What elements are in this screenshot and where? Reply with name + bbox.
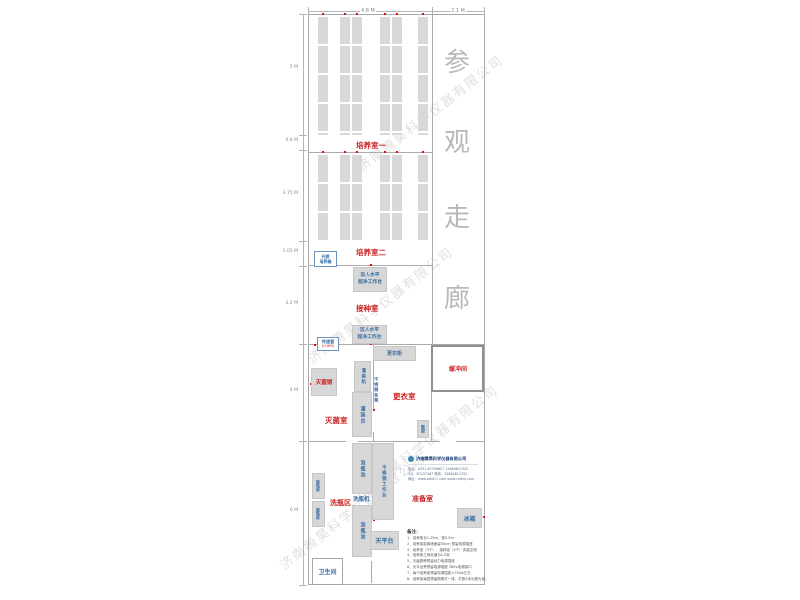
clean-bench-2: 双人水平 超净工作台 xyxy=(352,325,387,344)
dim-tick xyxy=(432,7,433,14)
fridge: 冰箱 xyxy=(457,508,482,528)
light-incubator: 光照 培养箱 xyxy=(314,251,337,267)
pass-window-size: (0.6M) xyxy=(322,344,334,349)
culture-rack xyxy=(340,17,350,135)
culture-rack xyxy=(352,17,362,135)
culture-rack xyxy=(418,155,428,242)
steel-worktable: 不锈钢工作台 xyxy=(372,443,394,520)
culture-rack xyxy=(380,155,390,242)
bottle-washer-label: 洗瓶机 xyxy=(353,495,370,503)
red-marker xyxy=(396,151,398,153)
corridor-char-2: 观 xyxy=(444,130,470,156)
door-gap xyxy=(346,441,358,442)
room-label-sterilization: 灭菌室 xyxy=(325,417,348,425)
company-logo-icon xyxy=(408,456,414,462)
red-marker xyxy=(483,516,485,518)
toilet: 卫生间 xyxy=(312,558,343,585)
wall-sterilization-east2 xyxy=(373,432,374,441)
shoe-rack: 鞋架 xyxy=(417,420,429,438)
company-block: 济南腾昊科学仪器有限公司 电话：0531-87799627 1586461235… xyxy=(408,456,478,482)
company-web: 网址：www.sdth17.com www.cnthkj.com xyxy=(408,477,478,482)
culture-rack xyxy=(380,17,390,135)
red-marker xyxy=(384,13,386,15)
toilet-label: 卫生间 xyxy=(318,567,336,576)
left-dimension-line xyxy=(303,14,304,585)
wall-below-buffer xyxy=(431,392,432,441)
dim-tick xyxy=(308,7,309,14)
soak-pool-label: 泡瓶池 xyxy=(360,460,365,478)
room-label-inoculation: 接种室 xyxy=(356,305,379,313)
dim-tick xyxy=(299,441,307,442)
dry-rack-1: 晾瓶架 xyxy=(312,473,325,499)
dim-tick xyxy=(299,585,307,586)
floor-plan: 济南腾昊科学仪器有限公司 济南腾昊科学仪器有限公司 济南腾昊科学仪器有限公司 济… xyxy=(0,0,800,600)
clean-bench-label2: 超净工作台 xyxy=(358,335,382,341)
soak-pool-label: 泡瓶池 xyxy=(360,522,365,540)
dry-rack-2: 晾瓶架 xyxy=(312,501,325,527)
pass-window: 传递窗 (0.6M) xyxy=(317,337,339,351)
culture-rack xyxy=(318,155,328,242)
soak-pool-2: 泡瓶池 xyxy=(352,505,372,557)
corridor-char-1: 参 xyxy=(444,50,470,76)
filling-machine-label: 灌装机 xyxy=(360,368,365,385)
autoclave: 灭菌锅 xyxy=(311,368,337,396)
filling-table-label: 灌装台 xyxy=(360,406,365,424)
door-gap xyxy=(440,441,456,442)
red-marker xyxy=(356,151,358,153)
steel-worktable-label: 不锈钢工作台 xyxy=(381,465,386,498)
wall-culture1-bottom xyxy=(308,152,432,153)
red-marker xyxy=(314,344,316,346)
filling-table: 灌装台 xyxy=(352,392,372,437)
red-marker xyxy=(356,13,358,15)
dim-tick xyxy=(299,241,307,242)
dim-label-left-5: 3.2 M xyxy=(268,302,298,307)
dim-label-left-2: 0.6 M xyxy=(268,139,298,144)
dim-label-left-7: 6 M xyxy=(268,509,298,514)
room-label-culture1: 培养室一 xyxy=(356,142,386,150)
dim-tick xyxy=(299,266,307,267)
filling-machine: 灌装机 xyxy=(354,361,371,392)
company-name: 济南腾昊科学仪器有限公司 xyxy=(416,456,466,462)
door-line-bottom xyxy=(371,561,372,583)
shoe-rack-label: 鞋架 xyxy=(421,425,425,433)
culture-rack xyxy=(392,155,402,242)
culture-rack xyxy=(352,155,362,242)
room-label-culture2: 培养室二 xyxy=(356,249,386,257)
light-incubator-label2: 培养箱 xyxy=(320,259,332,264)
locker: 更衣柜 xyxy=(373,346,416,361)
clean-bench-1: 双人水平 超净工作台 xyxy=(353,267,387,292)
red-marker xyxy=(422,151,424,153)
room-label-changing: 更衣室 xyxy=(393,393,416,401)
culture-rack xyxy=(340,155,350,242)
culture-rack xyxy=(318,17,328,135)
culture-rack xyxy=(418,17,428,135)
clean-bench-label2: 超净工作台 xyxy=(358,280,382,286)
steel-bench: 不锈钢条凳 xyxy=(374,377,378,403)
red-marker xyxy=(422,13,424,15)
red-marker xyxy=(322,151,324,153)
room-label-buffer: 缓冲间 xyxy=(449,367,467,373)
dry-rack-label: 晾瓶架 xyxy=(317,508,321,519)
dim-label-left-4: 1.05 M xyxy=(268,250,298,255)
fridge-label: 冰箱 xyxy=(463,514,475,523)
corridor-char-3: 走 xyxy=(444,205,470,231)
wall-washarea-top xyxy=(308,441,484,442)
dim-tick xyxy=(299,14,307,15)
balance-table-label: 天平台 xyxy=(375,536,393,545)
red-marker xyxy=(373,409,375,411)
autoclave-label: 灭菌锅 xyxy=(316,378,333,386)
soak-pool-1: 泡瓶池 xyxy=(352,443,372,494)
red-marker xyxy=(384,151,386,153)
balance-table: 天平台 xyxy=(370,531,399,550)
dim-label-left-1: 5 M xyxy=(268,66,298,71)
red-marker xyxy=(344,13,346,15)
dim-tick xyxy=(484,7,485,14)
bottle-washer: 洗瓶机 xyxy=(353,495,370,503)
dim-label-left-3: 3.75 M xyxy=(268,192,298,197)
wall-corridor xyxy=(432,14,433,345)
dim-label-left-6: 4 M xyxy=(268,389,298,394)
red-marker xyxy=(370,264,372,266)
room-label-washing: 洗瓶区 xyxy=(330,500,351,507)
dim-tick xyxy=(299,344,307,345)
dim-tick xyxy=(299,150,307,151)
dim-tick xyxy=(299,135,307,136)
red-marker xyxy=(396,13,398,15)
culture-rack xyxy=(392,17,402,135)
locker-label: 更衣柜 xyxy=(387,350,402,357)
red-marker xyxy=(322,13,324,15)
steel-bench-label: 不锈钢条凳 xyxy=(374,377,378,403)
red-marker xyxy=(344,151,346,153)
room-label-preparation: 准备室 xyxy=(412,496,433,503)
note-item: 8、培养架每层预留照明灯一排，灯数4米长度为宜。 xyxy=(407,577,485,583)
dry-rack-label: 晾瓶架 xyxy=(317,480,321,491)
notes-block: 备注： 1、培养架长1.25m，宽0.5m 2、培养架距离墙面留30cm 预留电… xyxy=(407,530,485,582)
corridor-char-4: 廊 xyxy=(444,286,470,312)
